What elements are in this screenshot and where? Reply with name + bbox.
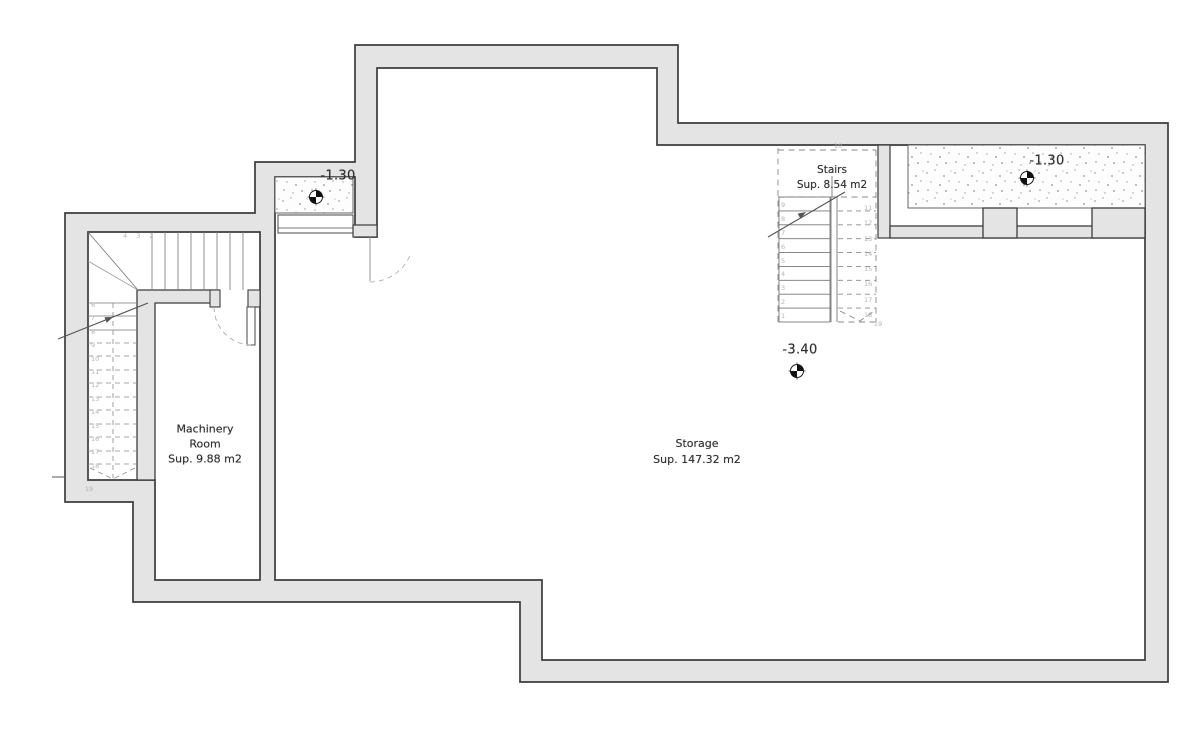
left-stair-run-numbers: 6789101112131415161718 (91, 299, 99, 473)
exterior-walls (65, 45, 1168, 682)
level-marker-storage (789, 363, 806, 380)
vestibule-door (370, 237, 411, 282)
right-entrance-porch (878, 145, 1145, 238)
stair-direction-arrow (768, 192, 845, 237)
storage-area: Sup. 147.32 m2 (653, 452, 741, 468)
stairs-area: Sup. 8.54 m2 (797, 178, 867, 193)
floor-plan: Machinery Room Sup. 9.88 m2 Storage Sup.… (0, 0, 1200, 733)
left-entrance-step (278, 215, 353, 233)
right-stair-number-bottom: 19 (874, 320, 882, 328)
level-label-storage: -3.40 (782, 343, 817, 358)
right-stair-up-run-numbers: 987654321 (781, 199, 785, 324)
machinery-room-door (214, 307, 255, 345)
porch-corner-wall (1092, 208, 1145, 238)
machinery-room-area: Sup. 9.88 m2 (168, 452, 242, 467)
machinery-room-label: Machinery Room Sup. 9.88 m2 (168, 422, 242, 467)
stairs-label: Stairs Sup. 8.54 m2 (797, 163, 867, 193)
right-stair-number-top: 10 (834, 142, 842, 150)
machinery-room-name-line1: Machinery (168, 422, 242, 437)
left-entrance-vestibule (275, 177, 411, 282)
storage-label: Storage Sup. 147.32 m2 (653, 436, 741, 468)
left-stair-top-numbers: 4 3 2 (123, 232, 157, 240)
porch-pier (983, 208, 1017, 238)
floor-plan-drawing (0, 0, 1200, 733)
level-label-left-entrance: -1.30 (320, 169, 355, 184)
right-stair-down-run-numbers: 1112131415161718 (864, 201, 872, 323)
stairs-name: Stairs (797, 163, 867, 178)
storage-name: Storage (653, 436, 741, 452)
level-label-right-entrance: -1.30 (1029, 154, 1064, 169)
machinery-room-name-line2: Room (168, 437, 242, 452)
left-stair-number-bottom: 19 (85, 485, 93, 493)
